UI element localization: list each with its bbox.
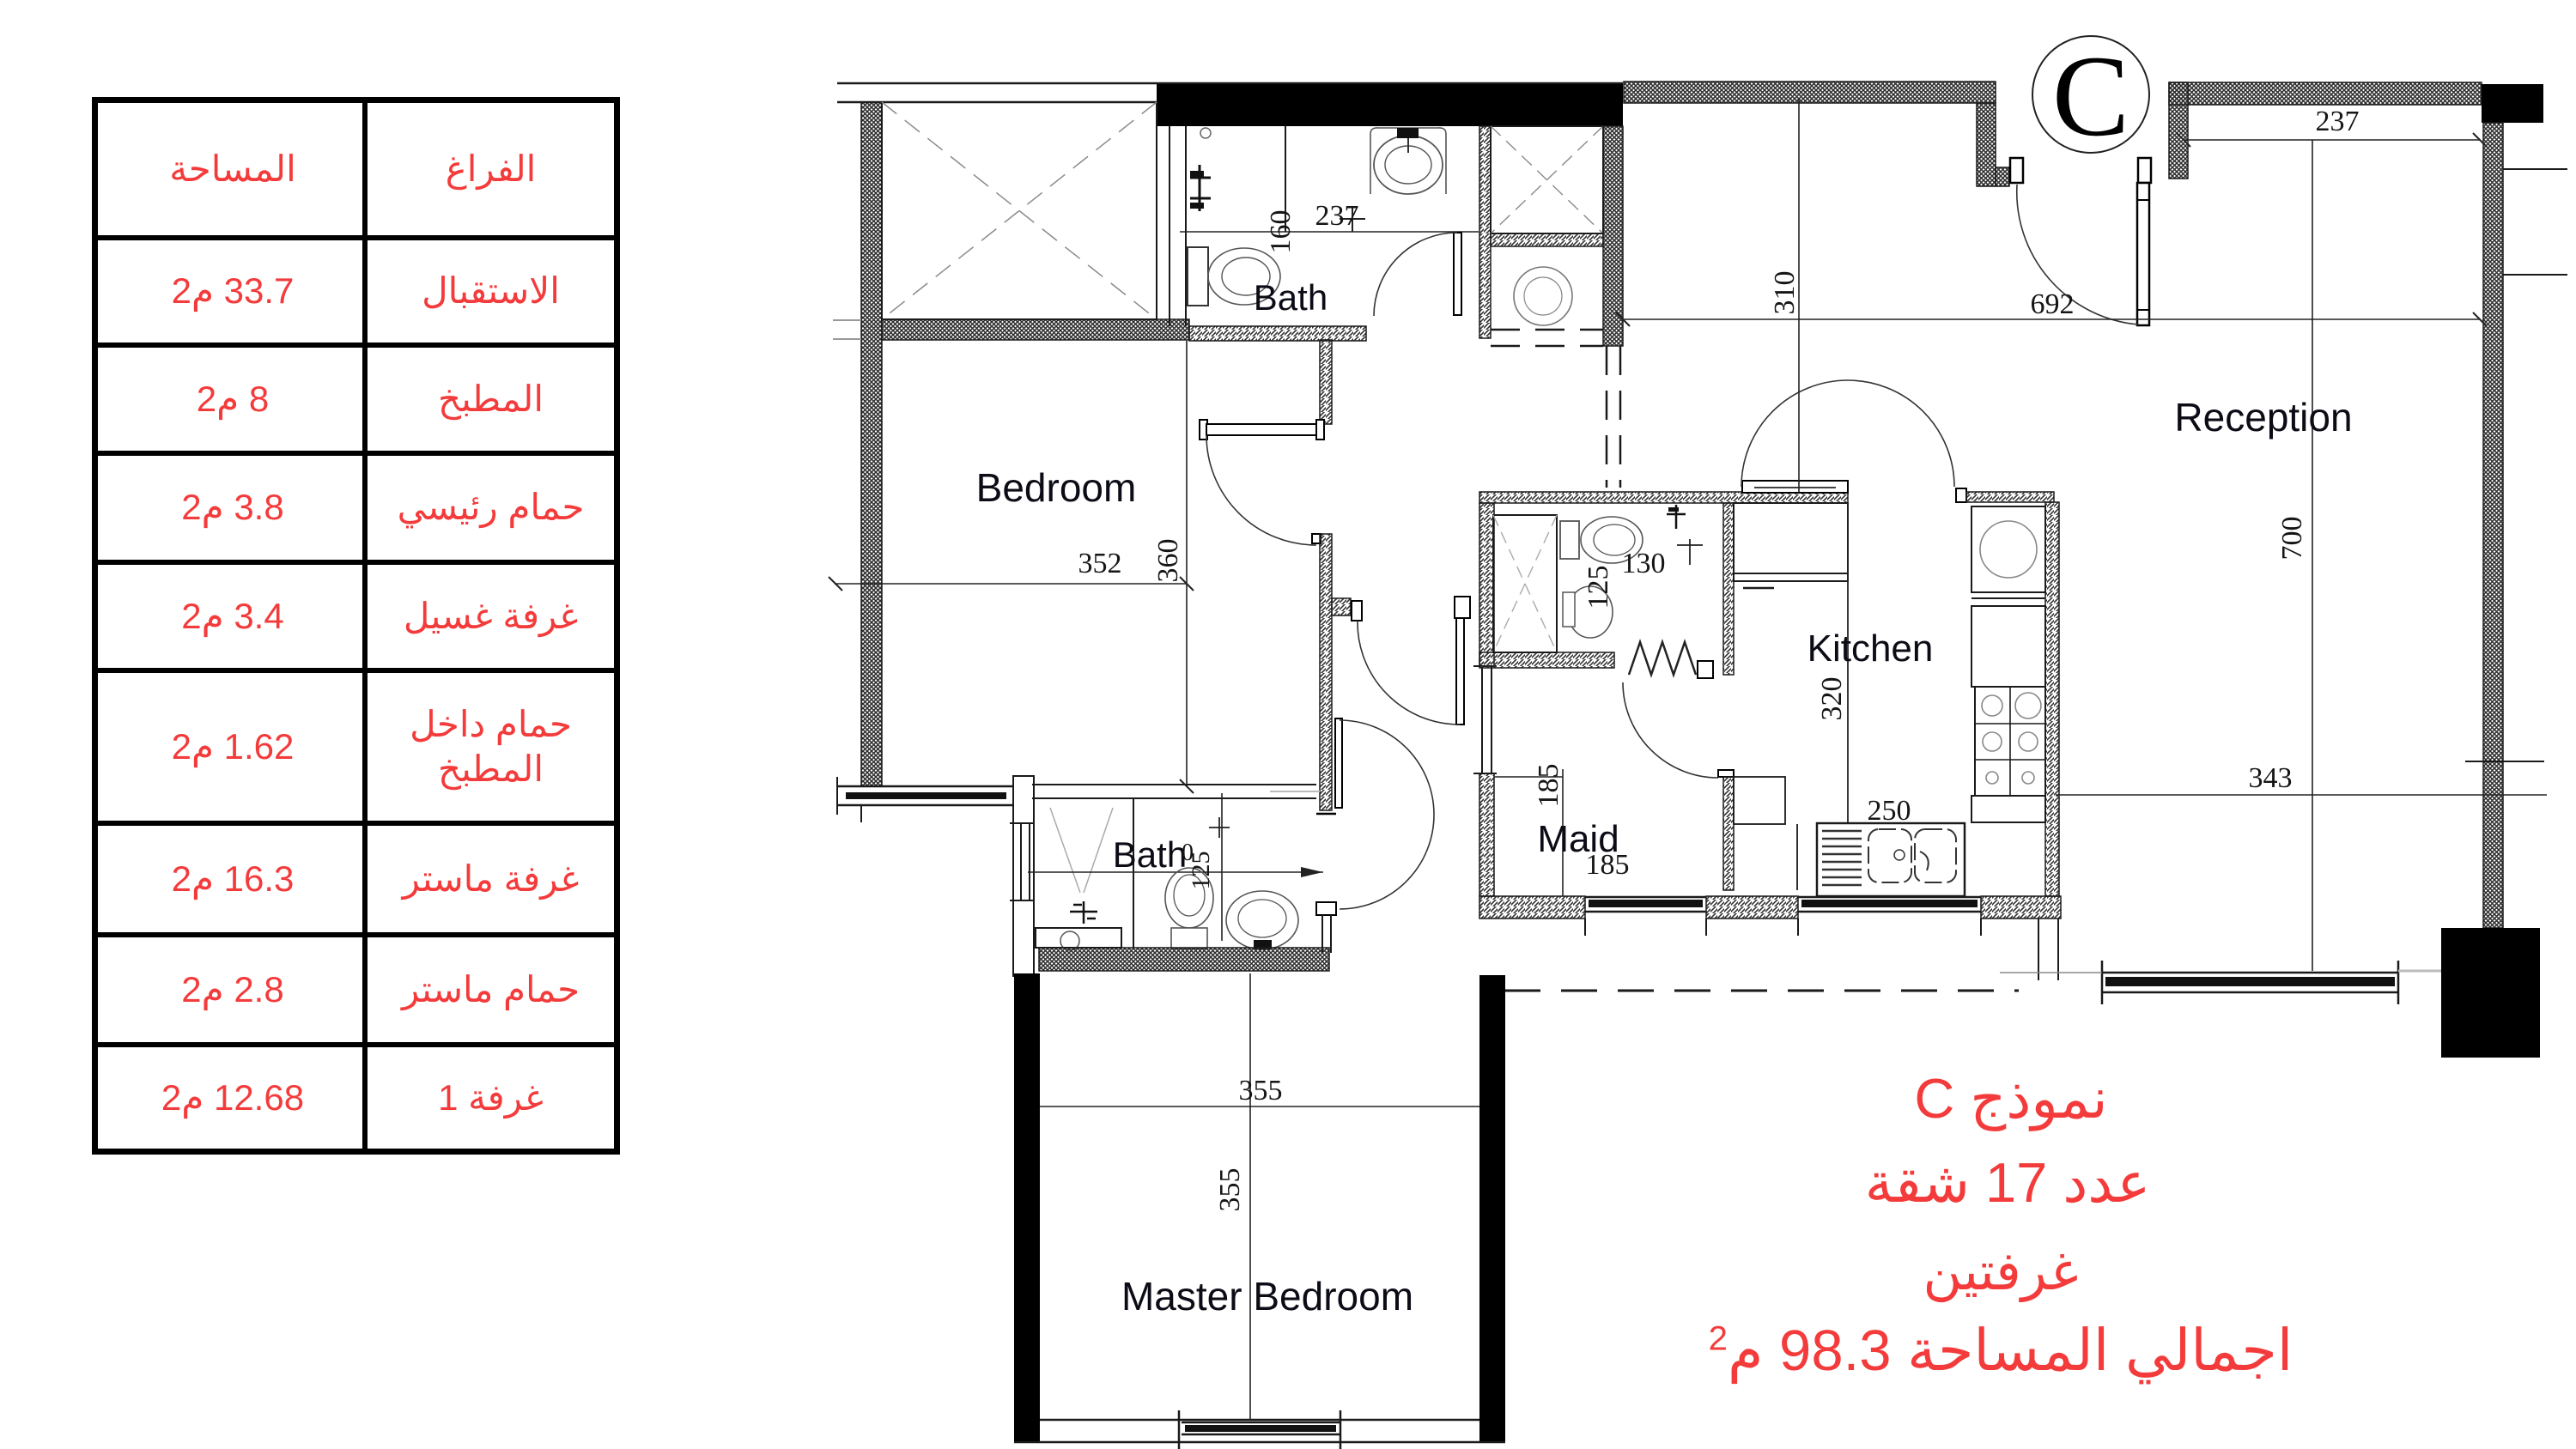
- svg-text:C: C: [2052, 33, 2129, 161]
